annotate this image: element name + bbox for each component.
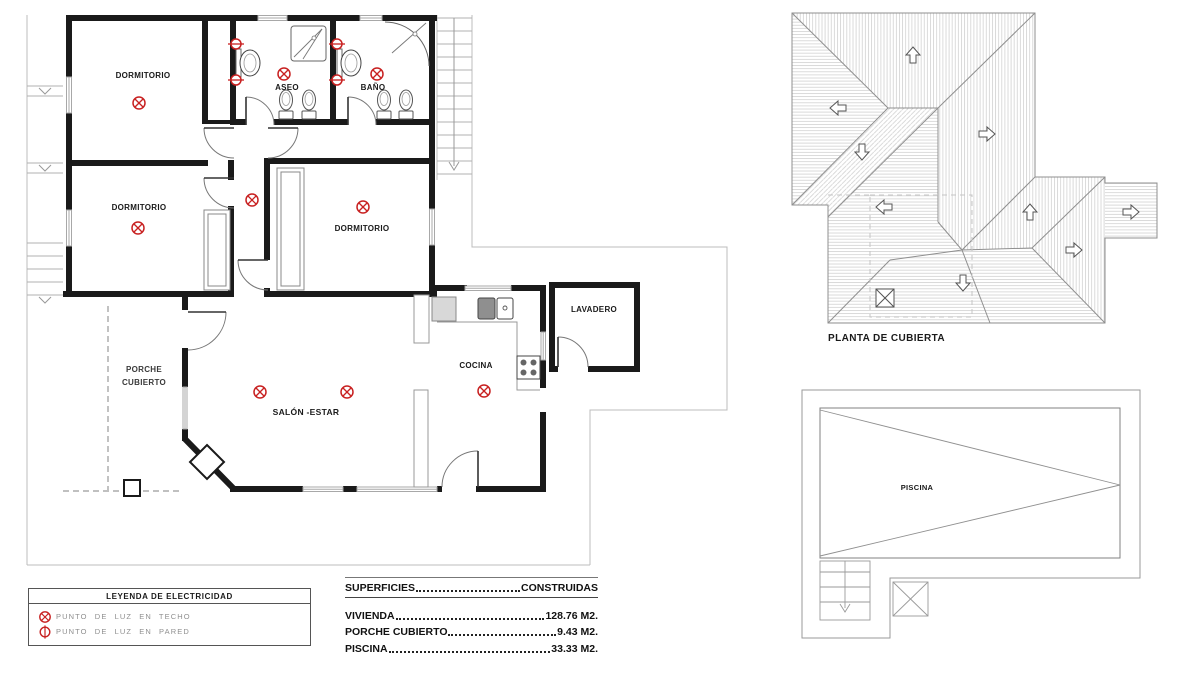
blueprint-canvas <box>0 0 1200 675</box>
wall-light-icon <box>37 625 53 639</box>
dotted-leader <box>389 651 551 653</box>
pool-steps <box>820 561 870 620</box>
room-label-dormitorio-3: DORMITORIO <box>335 224 390 233</box>
row-value: 128.76 M2. <box>545 610 598 622</box>
chimney <box>876 289 894 307</box>
dotted-leader <box>396 618 545 620</box>
sink-bowl-right <box>497 298 513 319</box>
legend-row-ceiling-light: PUNTO DE LUZ EN TECHO <box>37 609 302 624</box>
table-row-vivienda: VIVIENDA 128.76 M2. <box>345 605 598 622</box>
porch-dashed-outline <box>63 306 182 491</box>
sink-bowl-left <box>478 298 495 319</box>
windows <box>67 16 546 492</box>
roof-plan <box>792 13 1157 323</box>
pool-shower-pad <box>893 582 928 616</box>
row-label: PORCHE CUBIERTO <box>345 626 447 638</box>
legend-title: LEYENDA DE ELECTRICIDAD <box>29 589 310 604</box>
room-label-bano: BAÑO <box>361 83 386 92</box>
legend-label-ceiling: PUNTO DE LUZ EN TECHO <box>53 612 191 621</box>
exterior-stairs <box>437 15 472 180</box>
fridge <box>432 297 456 321</box>
built-areas-table: SUPERFICIES CONSTRUIDAS VIVIENDA 128.76 … <box>345 577 598 655</box>
roof-plan-caption: PLANTA DE CUBIERTA <box>828 333 945 344</box>
electricity-legend: LEYENDA DE ELECTRICIDAD PUNTO DE LUZ EN … <box>28 588 311 646</box>
kitchen-fixtures <box>414 295 540 487</box>
room-label-aseo: ASEO <box>275 83 299 92</box>
legend-row-wall-light: PUNTO DE LUZ EN PARED <box>37 624 302 639</box>
row-label: VIVIENDA <box>345 610 395 622</box>
room-label-cocina: COCINA <box>459 361 492 370</box>
row-label: PISCINA <box>345 643 388 655</box>
room-label-porche: PORCHE <box>126 365 162 374</box>
areas-header-right: CONSTRUIDAS <box>521 582 598 594</box>
table-row-porche: PORCHE CUBIERTO 9.43 M2. <box>345 622 598 639</box>
dotted-leader <box>416 590 520 592</box>
wardrobes <box>204 168 304 290</box>
row-value: 9.43 M2. <box>557 626 598 638</box>
walls <box>63 15 640 492</box>
room-label-lavadero: LAVADERO <box>571 305 617 314</box>
table-row-piscina: PISCINA 33.33 M2. <box>345 638 598 655</box>
pool-label: PISCINA <box>901 483 934 492</box>
areas-header-left: SUPERFICIES <box>345 582 415 594</box>
row-value: 33.33 M2. <box>551 643 598 655</box>
counter-column-upper <box>414 295 429 343</box>
dotted-leader <box>448 634 556 636</box>
room-label-dormitorio-2: DORMITORIO <box>112 203 167 212</box>
room-label-salon-estar: SALÓN -ESTAR <box>273 407 340 417</box>
blueprint-sheet: DORMITORIO ASEO BAÑO DORMITORIO DORMITOR… <box>0 0 1200 675</box>
stove <box>517 356 540 379</box>
ceiling-light-icon <box>37 610 53 624</box>
room-label-porche-2: CUBIERTO <box>122 378 166 387</box>
pool-plan <box>802 390 1140 638</box>
areas-table-header: SUPERFICIES CONSTRUIDAS <box>345 578 598 598</box>
room-label-dormitorio-1: DORMITORIO <box>116 71 171 80</box>
counter-column-lower <box>414 390 428 487</box>
porch-column <box>124 480 140 496</box>
legend-label-wall: PUNTO DE LUZ EN PARED <box>53 627 190 636</box>
